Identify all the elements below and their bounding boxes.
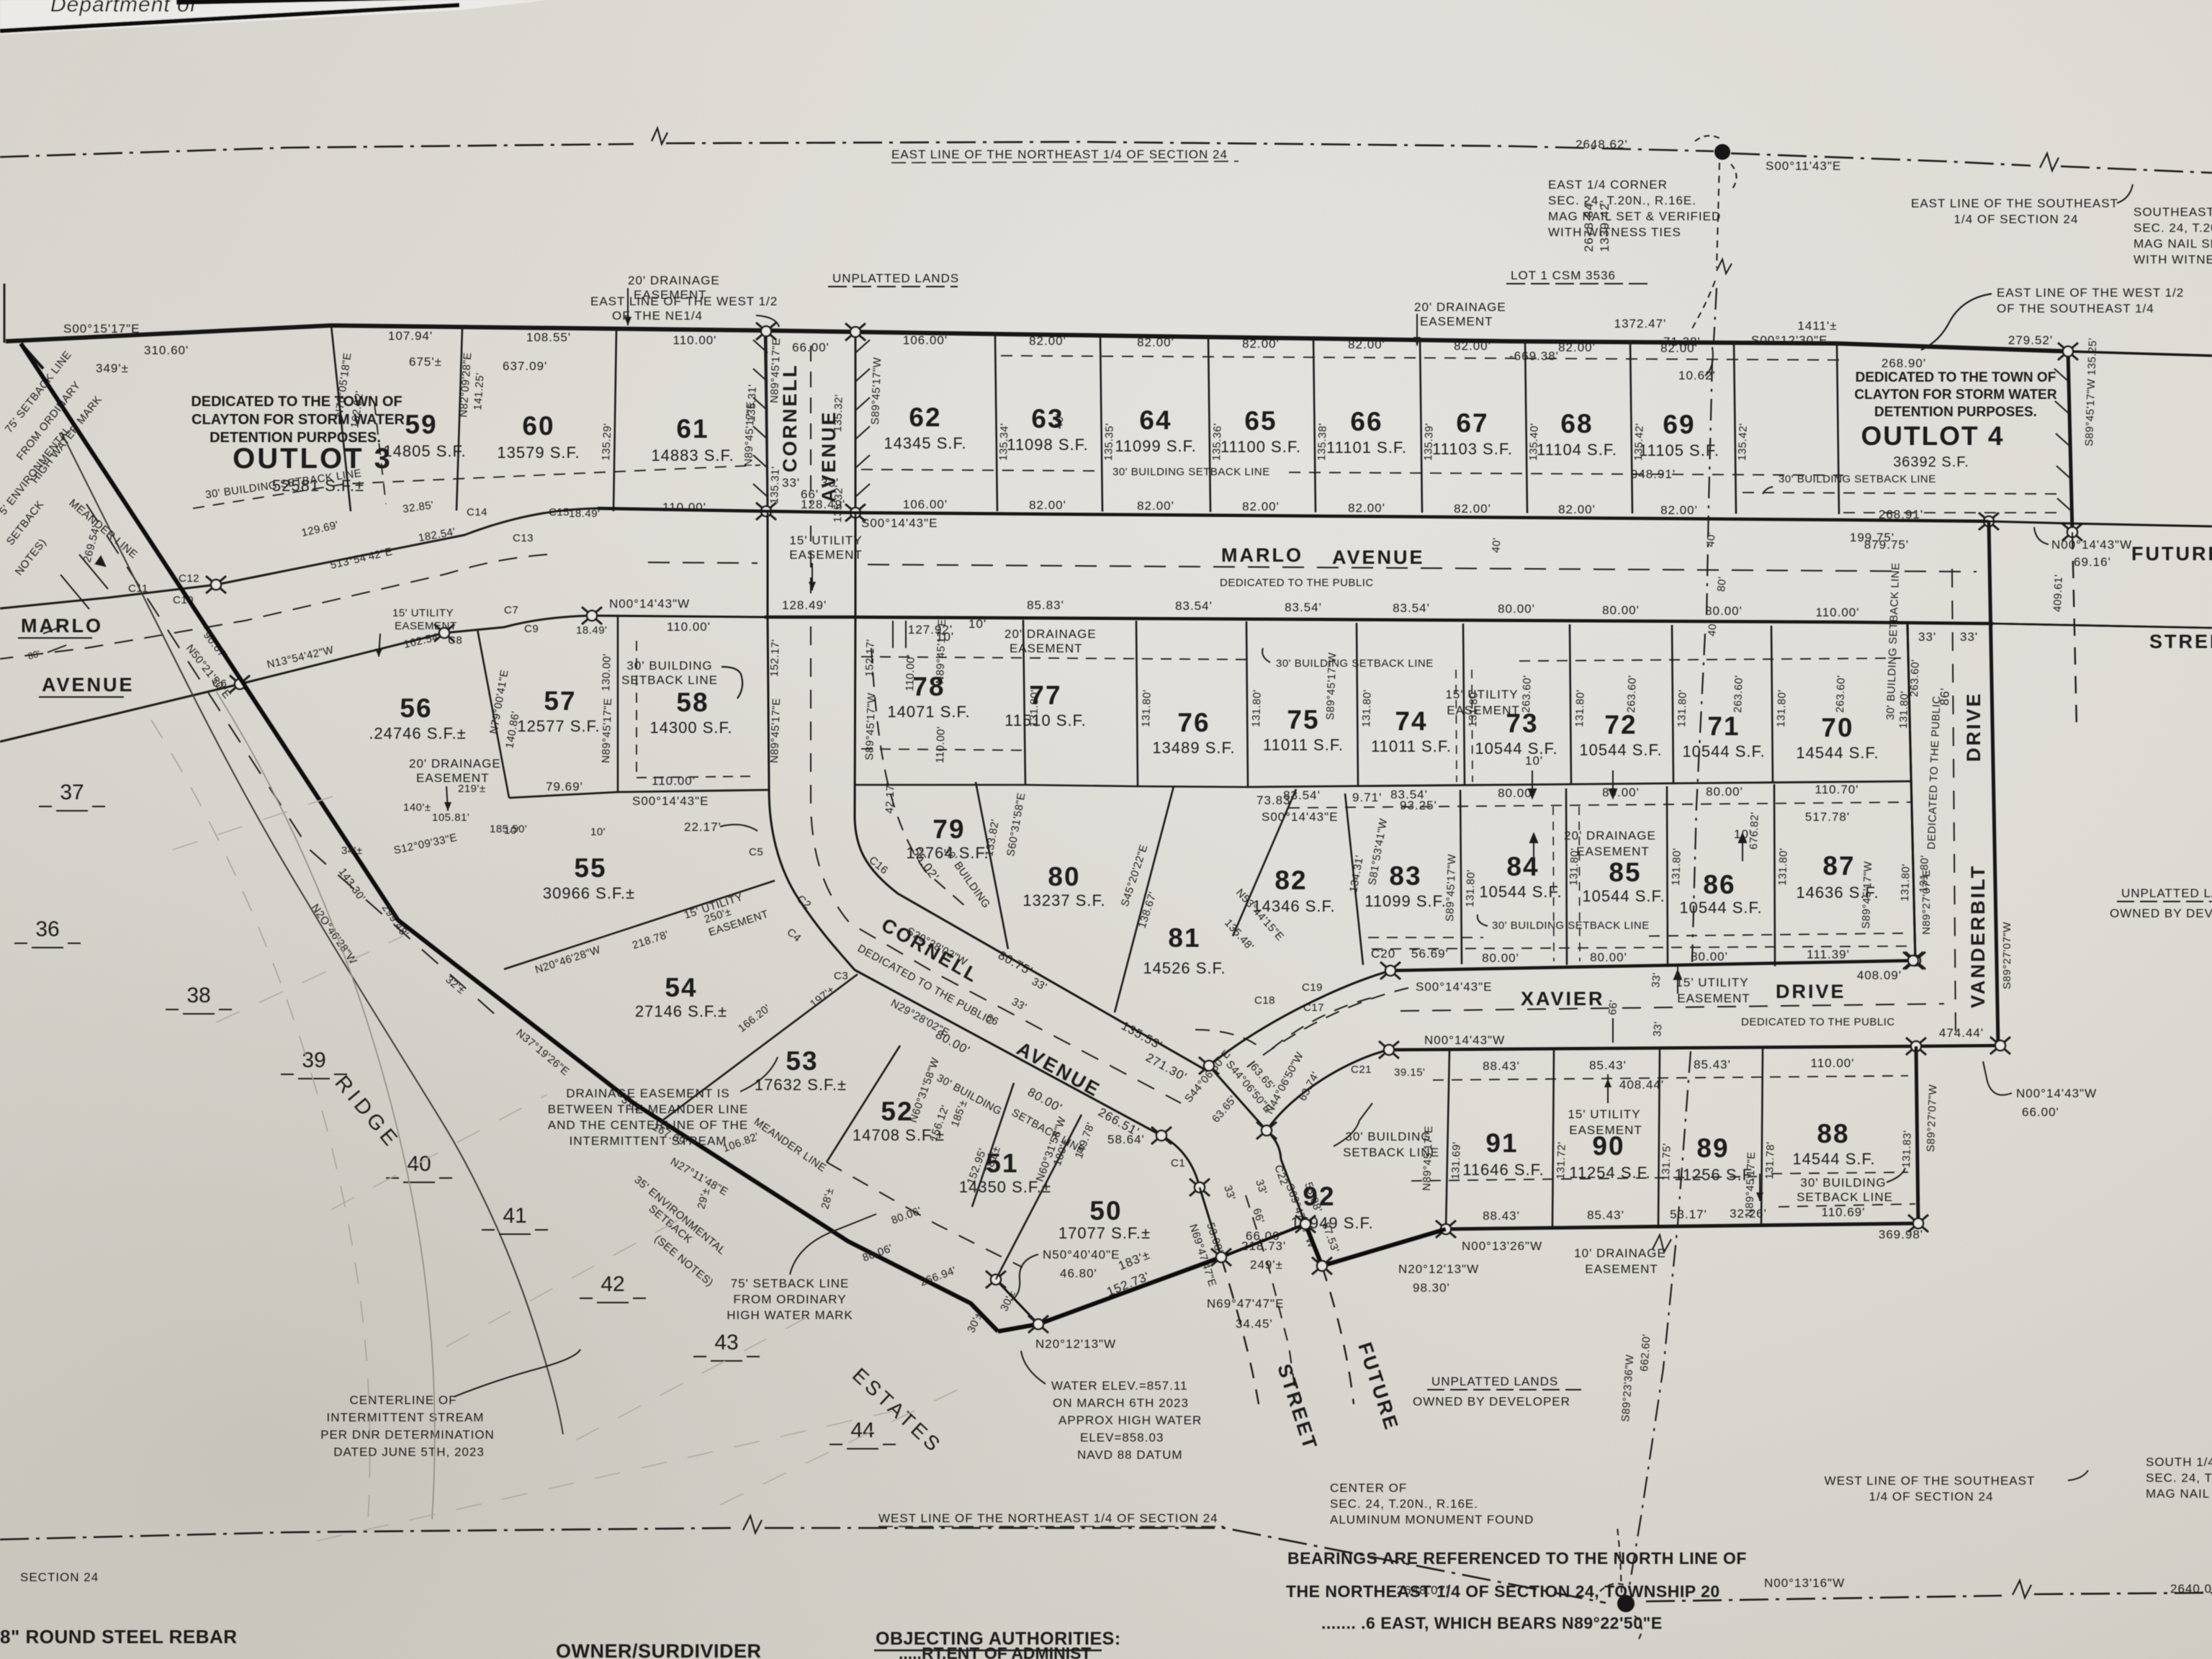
svg-text:80.00': 80.00' (1498, 786, 1535, 800)
svg-text:88.43': 88.43' (1483, 1059, 1520, 1073)
svg-text:20' DRAINAGE: 20' DRAINAGE (1414, 300, 1506, 314)
svg-text:79.69': 79.69' (546, 780, 583, 793)
svg-text:263.60': 263.60' (1732, 675, 1745, 713)
svg-text:75' SETBACK LINE: 75' SETBACK LINE (731, 1277, 850, 1290)
svg-text:HIGH WATER MARK: HIGH WATER MARK (727, 1308, 853, 1322)
svg-text:106.00': 106.00' (903, 333, 948, 347)
svg-text:C20: C20 (1371, 947, 1395, 961)
svg-text:76: 76 (1177, 708, 1210, 737)
svg-text:S00°14'43"E: S00°14'43"E (861, 516, 938, 530)
svg-text:EAST LINE OF THE WEST 1/2: EAST LINE OF THE WEST 1/2 (1997, 286, 2184, 300)
svg-text:83.54': 83.54' (1393, 601, 1430, 615)
svg-text:CORNELL: CORNELL (779, 364, 801, 473)
svg-text:110.69': 110.69' (1822, 1205, 1866, 1219)
svg-text:135.35': 135.35' (1102, 423, 1116, 461)
svg-text:EASEMENT: EASEMENT (789, 548, 863, 562)
svg-text:DATED JUNE 5TH, 2023: DATED JUNE 5TH, 2023 (333, 1445, 485, 1459)
svg-text:N20°12'13"W: N20°12'13"W (1398, 1262, 1479, 1276)
svg-text:37: 37 (60, 781, 84, 804)
svg-text:128.49': 128.49' (801, 498, 845, 511)
svg-text:EASEMENT: EASEMENT (1010, 642, 1083, 655)
svg-text:C6: C6 (212, 678, 227, 690)
svg-text:131.75': 131.75' (1660, 1143, 1673, 1181)
svg-text:S89°45'17"W: S89°45'17"W (1860, 860, 1874, 929)
svg-text:409.61': 409.61' (2051, 574, 2065, 612)
svg-text:40: 40 (407, 1152, 431, 1176)
svg-text:80.00': 80.00' (1590, 950, 1627, 964)
svg-text:18.49': 18.49' (569, 508, 600, 520)
svg-text:13237 S.F.: 13237 S.F. (1022, 891, 1105, 909)
svg-text:80: 80 (1048, 862, 1080, 891)
svg-text:131.80': 131.80' (1573, 689, 1587, 727)
svg-text:98.30': 98.30' (1413, 1281, 1450, 1295)
svg-text:S89°45'17"W: S89°45'17"W (869, 356, 884, 425)
svg-text:OF THE NE1/4: OF THE NE1/4 (612, 309, 703, 323)
svg-text:310.60': 310.60' (144, 343, 189, 357)
svg-text:517.78': 517.78' (1805, 810, 1850, 824)
svg-text:131.80': 131.80' (1676, 689, 1689, 727)
svg-text:C14: C14 (467, 506, 487, 518)
svg-text:11105 S.F.: 11105 S.F. (1639, 441, 1719, 459)
svg-text:OUTLOT 4: OUTLOT 4 (1861, 421, 2005, 451)
svg-text:33': 33' (1960, 630, 1978, 644)
svg-text:FROM ORDINARY: FROM ORDINARY (733, 1292, 846, 1306)
svg-text:-669.38': -669.38' (1509, 349, 1559, 363)
svg-text:EASEMENT: EASEMENT (1447, 703, 1520, 717)
svg-text:30' BUILDING SETBACK LINE: 30' BUILDING SETBACK LINE (1276, 657, 1434, 670)
svg-text:11099 S.F.: 11099 S.F. (1115, 437, 1197, 455)
svg-text:82.00': 82.00' (1454, 339, 1491, 353)
svg-text:DEDICATED TO THE TOWN OF: DEDICATED TO THE TOWN OF (1856, 370, 2056, 385)
svg-text:879.75': 879.75' (1864, 538, 1909, 552)
svg-text:41: 41 (503, 1204, 526, 1228)
svg-text:40': 40' (1490, 537, 1503, 553)
svg-text:C3: C3 (834, 970, 848, 982)
svg-text:93.25': 93.25' (1400, 799, 1437, 812)
svg-text:675'±: 675'± (409, 355, 442, 369)
svg-text:131.80': 131.80' (1670, 848, 1683, 886)
svg-text:131.69': 131.69' (1449, 1141, 1463, 1179)
svg-text:131.72': 131.72' (1555, 1141, 1568, 1179)
svg-text:SOUTH 1/4: SOUTH 1/4 (2146, 1455, 2212, 1469)
svg-text:15' UTILITY: 15' UTILITY (789, 534, 862, 547)
svg-text:637.09': 637.09' (503, 359, 547, 373)
svg-text:14805 S.F.: 14805 S.F. (383, 442, 466, 460)
svg-text:110.00': 110.00' (667, 620, 711, 634)
svg-text:1339.42': 1339.42' (1598, 199, 1611, 252)
svg-text:70: 70 (1821, 713, 1853, 742)
svg-text:Department of: Department of (50, 0, 198, 17)
svg-text:42: 42 (601, 1272, 624, 1296)
svg-text:30' BUILDING: 30' BUILDING (1345, 1130, 1431, 1143)
svg-text:S89°45'17"W: S89°45'17"W (1444, 853, 1458, 922)
svg-text:40': 40' (1704, 531, 1718, 547)
svg-text:110.00': 110.00' (673, 333, 717, 347)
svg-text:135.31': 135.31' (745, 384, 759, 422)
svg-text:15' UTILITY: 15' UTILITY (1568, 1107, 1640, 1121)
svg-text:8" ROUND STEEL REBAR: 8" ROUND STEEL REBAR (0, 1626, 238, 1647)
svg-text:64: 64 (1139, 405, 1172, 435)
svg-text:107.94': 107.94' (388, 329, 433, 343)
svg-text:DEDICATED TO THE PUBLIC: DEDICATED TO THE PUBLIC (1741, 1016, 1895, 1028)
svg-text:1/4 OF SECTION 24: 1/4 OF SECTION 24 (1869, 1490, 1994, 1503)
svg-text:20' DRAINAGE: 20' DRAINAGE (1564, 829, 1656, 842)
svg-text:S00°14'43"E: S00°14'43"E (632, 794, 709, 808)
svg-text:85: 85 (1609, 858, 1641, 887)
svg-text:12577 S.F.: 12577 S.F. (517, 717, 600, 735)
svg-text:LOT 1 CSM 3536: LOT 1 CSM 3536 (1511, 269, 1616, 282)
svg-text:N89°45'17"E: N89°45'17"E (1421, 1125, 1435, 1191)
svg-text:279.52': 279.52' (2008, 333, 2053, 347)
svg-text:N20°12'13"W: N20°12'13"W (1035, 1337, 1116, 1351)
svg-text:C19: C19 (1302, 981, 1323, 994)
svg-text:OF THE SOUTHEAST 1/4: OF THE SOUTHEAST 1/4 (1997, 302, 2154, 315)
svg-text:42.17': 42.17' (884, 782, 897, 814)
svg-text:14544 S.F.: 14544 S.F. (1792, 1150, 1875, 1168)
svg-text:66: 66 (1350, 407, 1382, 436)
svg-text:11098 S.F.: 11098 S.F. (1007, 436, 1089, 454)
svg-text:75: 75 (1287, 705, 1319, 734)
svg-text:14071 S.F.: 14071 S.F. (887, 703, 970, 721)
svg-text:.....RT.ENT OF ADMINIST: .....RT.ENT OF ADMINIST (899, 1644, 1091, 1659)
svg-text:79: 79 (932, 814, 965, 844)
svg-text:10544 S.F.: 10544 S.F. (1579, 741, 1662, 759)
svg-text:54: 54 (665, 973, 697, 1002)
svg-text:87: 87 (1822, 851, 1855, 881)
svg-text:MARLO: MARLO (21, 615, 103, 637)
svg-text:BEARINGS ARE REFERENCED TO: BEARINGS ARE REFERENCED TO THE NORTH LIN… (1287, 1549, 1747, 1568)
svg-text:N00°14'43"W: N00°14'43"W (2051, 538, 2132, 552)
svg-text:EAST LINE OF THE SOUTHEAST: EAST LINE OF THE SOUTHEAST (1911, 197, 2118, 210)
svg-text:10544 S.F.: 10544 S.F. (1479, 883, 1562, 901)
svg-text:82: 82 (1274, 866, 1307, 895)
svg-text:91: 91 (1485, 1128, 1518, 1158)
svg-text:46.80': 46.80' (1060, 1267, 1097, 1280)
svg-text:15' UTILITY: 15' UTILITY (1676, 976, 1748, 989)
svg-text:349'±: 349'± (96, 361, 129, 375)
svg-text:C13: C13 (513, 532, 534, 544)
svg-text:EASEMENT: EASEMENT (416, 771, 490, 785)
svg-text:135.29': 135.29' (600, 423, 614, 461)
svg-text:80.00': 80.00' (1498, 602, 1535, 616)
svg-text:DRIVE: DRIVE (1963, 691, 1984, 762)
svg-text:OWNED BY DEVELOPER: OWNED BY DEVELOPER (1413, 1395, 1570, 1408)
svg-text:10': 10' (590, 826, 606, 838)
svg-text:80': 80' (1715, 576, 1729, 592)
svg-text:2640.00: 2640.00 (2170, 1582, 2212, 1596)
svg-text:80.00': 80.00' (1705, 604, 1743, 618)
svg-text:EASEMENT: EASEMENT (1677, 992, 1750, 1005)
svg-text:MAG NAIL S: MAG NAIL S (2146, 1487, 2212, 1501)
svg-text:C18: C18 (1254, 994, 1275, 1007)
svg-text:110.00': 110.00' (652, 774, 696, 788)
svg-text:SETBACK LINE: SETBACK LINE (1797, 1190, 1893, 1204)
svg-text:82.00': 82.00' (1137, 336, 1174, 349)
svg-text:11011 S.F.: 11011 S.F. (1263, 736, 1344, 754)
svg-text:NAVD 88 DATUM: NAVD 88 DATUM (1077, 1448, 1183, 1462)
svg-text:65: 65 (1244, 406, 1277, 436)
svg-text:131.80': 131.80' (1360, 689, 1374, 727)
svg-text:85.43': 85.43' (1589, 1058, 1627, 1072)
svg-text:14526 S.F.: 14526 S.F. (1143, 959, 1226, 977)
svg-text:N00°13'16"W: N00°13'16"W (1764, 1576, 1845, 1590)
svg-text:60: 60 (522, 411, 554, 441)
svg-text:55: 55 (574, 853, 606, 883)
svg-text:110.00': 110.00' (934, 726, 948, 763)
svg-text:10': 10' (936, 630, 954, 644)
svg-text:135.40': 135.40' (1527, 423, 1541, 461)
svg-text:15' UTILITY: 15' UTILITY (392, 607, 454, 619)
svg-text:11510 S.F.: 11510 S.F. (1004, 711, 1087, 729)
svg-text:82.00': 82.00' (1660, 341, 1698, 355)
svg-text:110.00': 110.00' (662, 500, 706, 514)
svg-text:66.00': 66.00' (2022, 1105, 2059, 1119)
svg-text:MAG NAIL SET & VERIFIED: MAG NAIL SET & VERIFIED (1548, 210, 1721, 223)
svg-text:105.81': 105.81' (432, 811, 469, 824)
svg-text:30' BUILDING SETBACK LINE: 30' BUILDING SETBACK LINE (1492, 920, 1650, 932)
svg-text:135.39': 135.39' (1422, 423, 1436, 461)
svg-text:50: 50 (1089, 1196, 1122, 1226)
svg-text:11099 S.F.: 11099 S.F. (1364, 892, 1447, 910)
svg-text:C1: C1 (1171, 1157, 1185, 1169)
svg-text:N00°14'43"W: N00°14'43"W (1424, 1033, 1505, 1047)
svg-text:39: 39 (302, 1048, 325, 1072)
svg-text:131.80': 131.80' (1464, 869, 1478, 907)
svg-text:10544 S.F.: 10544 S.F. (1582, 887, 1665, 905)
svg-text:13489 S.F.: 13489 S.F. (1152, 739, 1235, 757)
svg-text:2648.62': 2648.62' (1575, 138, 1628, 151)
svg-text:36: 36 (35, 917, 59, 941)
svg-text:82.00': 82.00' (1558, 503, 1596, 516)
svg-text:263.60': 263.60' (1625, 675, 1639, 713)
svg-text:11103 S.F.: 11103 S.F. (1432, 440, 1513, 458)
svg-text:85.43': 85.43' (1694, 1058, 1731, 1071)
svg-text:61: 61 (676, 414, 709, 444)
svg-text:82.00': 82.00' (1137, 499, 1174, 513)
svg-text:130.00': 130.00' (600, 653, 613, 691)
svg-text:30' BUILDING SETBACK LINE: 30' BUILDING SETBACK LINE (1779, 473, 1936, 485)
svg-text:UNPLATTED LANDS: UNPLATTED LANDS (832, 271, 959, 285)
svg-text:17632 S.F.±: 17632 S.F.± (755, 1076, 847, 1094)
svg-text:S00°14'43"E: S00°14'43"E (1262, 810, 1338, 824)
svg-text:66': 66' (1606, 999, 1620, 1015)
svg-text:83.54': 83.54' (1285, 601, 1322, 614)
svg-text:C21: C21 (1351, 1064, 1372, 1076)
svg-text:82.00': 82.00' (1454, 502, 1491, 516)
svg-text:53: 53 (786, 1046, 818, 1076)
svg-text:10': 10' (968, 617, 986, 631)
svg-text:WEST LINE OF THE NORTHEAST: WEST LINE OF THE NORTHEAST 1/4 OF SECTIO… (878, 1511, 1218, 1525)
svg-text:131.83': 131.83' (1900, 1130, 1914, 1168)
svg-text:73.83': 73.83' (1256, 793, 1294, 807)
svg-text:APPROX HIGH WATER: APPROX HIGH WATER (1058, 1413, 1202, 1427)
svg-text:62: 62 (909, 403, 941, 432)
svg-text:71: 71 (1707, 711, 1740, 741)
svg-text:DRIVE: DRIVE (1776, 981, 1846, 1002)
svg-text:69: 69 (1663, 410, 1695, 439)
svg-text:85.43': 85.43' (1587, 1208, 1624, 1222)
svg-text:C5: C5 (749, 846, 763, 858)
svg-text:WEST LINE OF THE SOUTHEAST: WEST LINE OF THE SOUTHEAST (1825, 1474, 2036, 1488)
svg-text:33': 33' (1918, 630, 1936, 644)
svg-text:135.34': 135.34' (997, 423, 1011, 461)
svg-text:36392 S.F.: 36392 S.F. (1893, 454, 1969, 470)
svg-text:VANDERBILT: VANDERBILT (1967, 864, 1989, 1008)
svg-text:82.00': 82.00' (1029, 498, 1066, 512)
svg-text:FUTURE: FUTURE (2131, 543, 2212, 565)
svg-text:88: 88 (1817, 1119, 1849, 1148)
svg-text:CLAYTON FOR STORM WATER: CLAYTON FOR STORM WATER (1854, 387, 2056, 403)
svg-text:131.80': 131.80' (1140, 689, 1154, 727)
svg-text:EAST LINE OF THE NORTHEAST: EAST LINE OF THE NORTHEAST 1/4 OF SECTIO… (891, 148, 1228, 161)
svg-text:N69°47'47"E: N69°47'47"E (1207, 1297, 1284, 1310)
svg-text:131.80': 131.80' (1028, 689, 1041, 727)
svg-text:43: 43 (714, 1331, 738, 1354)
svg-text:1372.47': 1372.47' (1614, 317, 1667, 331)
svg-text:XAVIER: XAVIER (1521, 988, 1605, 1010)
svg-text:14544 S.F.: 14544 S.F. (1796, 744, 1879, 762)
svg-text:UNPLATTED LANDS: UNPLATTED LANDS (1431, 1375, 1558, 1388)
svg-text:EASEMENT: EASEMENT (1420, 315, 1493, 328)
svg-text:33': 33' (821, 476, 839, 490)
svg-text:14300 S.F.: 14300 S.F. (649, 719, 732, 737)
svg-text:185.50': 185.50' (490, 823, 527, 835)
svg-text:S89°27'07"W: S89°27'07"W (2001, 922, 2013, 989)
svg-text:474.44': 474.44' (1939, 1026, 1984, 1040)
svg-text:369.98': 369.98' (1879, 1228, 1923, 1241)
svg-text:ON MARCH 6TH 2023: ON MARCH 6TH 2023 (1053, 1396, 1189, 1410)
svg-text:34.45': 34.45' (1236, 1317, 1273, 1331)
svg-text:58: 58 (676, 688, 709, 717)
svg-text:67: 67 (1456, 408, 1488, 438)
svg-text:SEC. 24, T.20N., R.16E.: SEC. 24, T.20N., R.16E. (1330, 1497, 1478, 1511)
svg-text:131.78': 131.78' (1763, 1141, 1777, 1179)
svg-text:EASEMENT: EASEMENT (1569, 1123, 1642, 1137)
svg-text:SEC. 24, T.20: SEC. 24, T.20 (2134, 221, 2212, 235)
svg-text:66.00': 66.00' (1246, 1229, 1283, 1243)
svg-text:85.83': 85.83' (1027, 598, 1064, 612)
svg-text:57: 57 (544, 686, 576, 716)
svg-text:33': 33' (782, 476, 800, 490)
svg-text:11101 S.F.: 11101 S.F. (1326, 439, 1407, 457)
svg-text:MARLO: MARLO (1221, 544, 1303, 566)
svg-text:EASEMENT: EASEMENT (1585, 1262, 1658, 1276)
svg-text:S00°12'30"E: S00°12'30"E (1751, 333, 1827, 347)
svg-text:135.42': 135.42' (1736, 423, 1750, 461)
svg-text:13579 S.F.: 13579 S.F. (497, 444, 580, 462)
svg-text:PER DNR DETERMINATION: PER DNR DETERMINATION (320, 1428, 495, 1442)
svg-text:152.17': 152.17' (863, 639, 877, 677)
svg-text:N00°14'43"W: N00°14'43"W (609, 597, 690, 611)
svg-text:131.80': 131.80' (1775, 689, 1789, 727)
svg-text:20' DRAINAGE: 20' DRAINAGE (1004, 627, 1097, 641)
svg-text:S00°11'43"E: S00°11'43"E (1766, 159, 1841, 173)
svg-text:82.00': 82.00' (1029, 334, 1066, 348)
svg-text:110.00': 110.00' (1816, 606, 1860, 619)
svg-text:89: 89 (1696, 1133, 1729, 1163)
svg-text:408.44': 408.44' (1619, 1078, 1664, 1092)
svg-text:38: 38 (186, 984, 210, 1007)
svg-text:82.00': 82.00' (1242, 500, 1280, 513)
svg-text:83: 83 (1389, 861, 1421, 891)
svg-text:BETWEEN THE MEANDER LINE: BETWEEN THE MEANDER LINE (548, 1102, 749, 1116)
svg-text:135.42': 135.42' (1632, 423, 1646, 461)
svg-text:UNPLATTED LANDS: UNPLATTED LANDS (2121, 886, 2212, 900)
svg-text:82.00': 82.00' (1348, 338, 1385, 351)
svg-text:9.71': 9.71' (1352, 791, 1382, 804)
svg-text:56: 56 (400, 693, 432, 723)
svg-text:MAG NAIL SET: MAG NAIL SET (2134, 237, 2212, 251)
svg-text:111.39': 111.39' (1807, 948, 1850, 961)
svg-text:39.15': 39.15' (1394, 1066, 1425, 1079)
svg-text:30' BUILDING: 30' BUILDING (626, 659, 712, 673)
svg-text:82.00': 82.00' (1558, 341, 1596, 354)
svg-text:10544 S.F.: 10544 S.F. (1475, 739, 1557, 757)
svg-text:18.49': 18.49' (576, 624, 607, 637)
svg-text:20' DRAINAGE: 20' DRAINAGE (628, 274, 720, 287)
svg-text:83.54': 83.54' (1175, 599, 1213, 613)
svg-text:CENTERLINE OF: CENTERLINE OF (349, 1393, 457, 1407)
svg-text:AVENUE: AVENUE (1332, 547, 1425, 568)
svg-text:52: 52 (881, 1097, 913, 1126)
svg-text:72: 72 (1604, 710, 1637, 739)
svg-text:DEDICATED TO THE TOWN OF: DEDICATED TO THE TOWN OF (191, 394, 402, 410)
svg-text:10544 S.F.: 10544 S.F. (1679, 899, 1762, 917)
svg-text:30' BUILDING: 30' BUILDING (1800, 1176, 1886, 1190)
svg-text:OWNER/SURDIVIDER: OWNER/SURDIVIDER (556, 1640, 762, 1659)
svg-text:1/4 OF SECTION 24: 1/4 OF SECTION 24 (1954, 212, 2079, 226)
svg-text:58.64': 58.64' (1107, 1133, 1145, 1146)
svg-text:11646 S.F.: 11646 S.F. (1462, 1161, 1545, 1179)
svg-text:N89°45'17"E: N89°45'17"E (768, 698, 783, 763)
svg-text:S00°14'43"E: S00°14'43"E (1416, 980, 1492, 994)
svg-text:EASEMENT: EASEMENT (1576, 845, 1650, 858)
svg-text:WITH WITNESS: WITH WITNESS (2134, 253, 2212, 266)
svg-text:22.17': 22.17' (684, 820, 721, 834)
svg-text:30966 S.F.±: 30966 S.F.± (543, 884, 635, 902)
svg-text:34'±: 34'± (341, 845, 363, 857)
svg-text:STREET: STREET (2149, 631, 2212, 652)
svg-text:INTERMITTENT STREAM: INTERMITTENT STREAM (570, 1134, 727, 1148)
svg-text:DEDICATED TO THE PUBLIC: DEDICATED TO THE PUBLIC (1220, 577, 1374, 589)
svg-text:17077 S.F.±: 17077 S.F.± (1058, 1224, 1151, 1242)
svg-text:N00°14'43"W: N00°14'43"W (2016, 1087, 2097, 1100)
svg-text:82.00': 82.00' (1348, 501, 1385, 515)
svg-text:948.91': 948.91' (1631, 467, 1676, 481)
svg-text:74: 74 (1395, 706, 1427, 736)
svg-text:N00°13'26"W: N00°13'26"W (1462, 1239, 1542, 1253)
svg-text:108.55': 108.55' (526, 331, 571, 344)
svg-text:88.43': 88.43' (1483, 1209, 1520, 1223)
svg-text:WITH WITNESS TIES: WITH WITNESS TIES (1548, 225, 1681, 239)
svg-text:20' DRAINAGE: 20' DRAINAGE (409, 757, 501, 770)
svg-text:27146 S.F.±: 27146 S.F.± (635, 1002, 727, 1020)
svg-text:S89°27'07"W: S89°27'07"W (1925, 1084, 1939, 1152)
svg-text:110.00': 110.00' (904, 654, 917, 691)
svg-text:10': 10' (1525, 754, 1543, 768)
svg-text:THE NORTHEAST 1/4 OF SECTI: THE NORTHEAST 1/4 OF SECTION 24, TOWNSHI… (1286, 1582, 1720, 1601)
svg-text:C12: C12 (179, 572, 199, 585)
svg-text:131.80': 131.80' (1899, 863, 1912, 902)
svg-text:INTERMITTENT STREAM: INTERMITTENT STREAM (327, 1411, 485, 1424)
svg-text:OWNED BY DEVELOPER: OWNED BY DEVELOPER (2110, 907, 2212, 920)
svg-text:86: 86 (1703, 870, 1735, 899)
svg-text:80.00': 80.00' (1482, 951, 1519, 965)
svg-text:C9: C9 (524, 623, 539, 635)
svg-text:106.00': 106.00' (903, 498, 948, 511)
svg-text:OUTLOT 3: OUTLOT 3 (233, 443, 392, 475)
svg-text:DRAINAGE EASEMENT IS: DRAINAGE EASEMENT IS (566, 1087, 730, 1100)
